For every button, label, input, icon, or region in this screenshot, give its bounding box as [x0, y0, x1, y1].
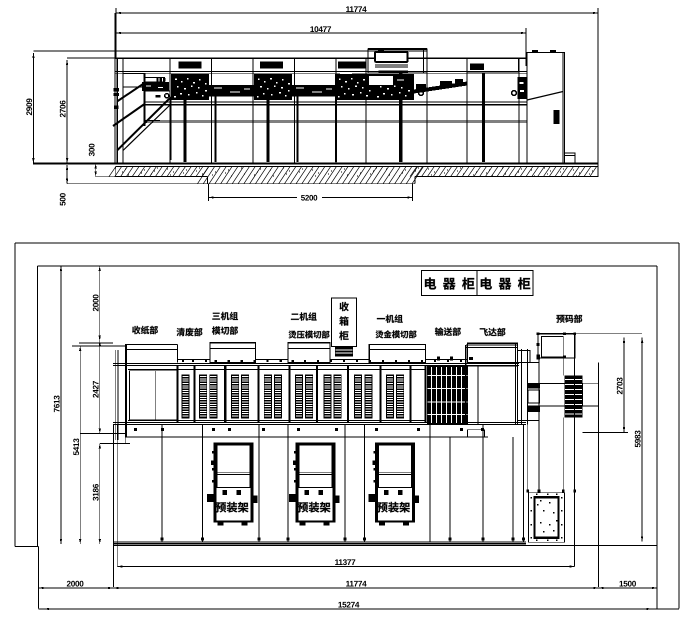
svg-text:15274: 15274 — [338, 600, 360, 609]
svg-text:5200: 5200 — [301, 193, 318, 202]
svg-text:5413: 5413 — [72, 438, 81, 456]
svg-text:5983: 5983 — [634, 430, 643, 448]
svg-text:3186: 3186 — [91, 483, 100, 501]
svg-text:300: 300 — [87, 143, 96, 157]
svg-text:11774: 11774 — [346, 5, 368, 14]
svg-text:2427: 2427 — [91, 380, 100, 398]
svg-text:2706: 2706 — [59, 100, 68, 118]
svg-text:500: 500 — [59, 192, 68, 206]
svg-text:11774: 11774 — [346, 579, 368, 588]
svg-text:2000: 2000 — [66, 579, 84, 588]
svg-text:2703: 2703 — [616, 377, 625, 395]
svg-text:2909: 2909 — [25, 98, 34, 116]
svg-text:11377: 11377 — [335, 558, 357, 567]
svg-text:1500: 1500 — [619, 579, 637, 588]
svg-text:10477: 10477 — [310, 25, 332, 34]
svg-text:7613: 7613 — [53, 395, 62, 413]
svg-text:2000: 2000 — [91, 294, 100, 312]
